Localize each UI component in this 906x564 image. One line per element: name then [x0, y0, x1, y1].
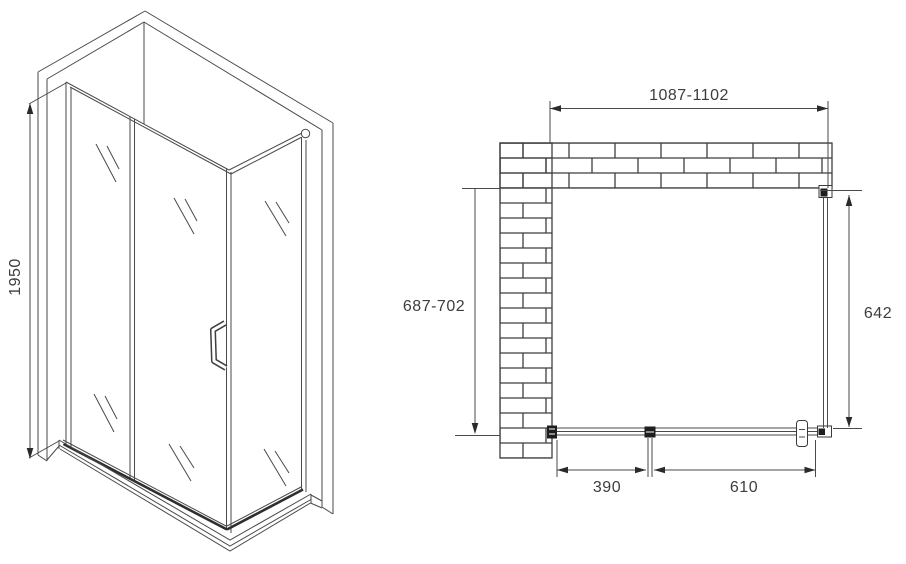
wall-profile-fitting — [547, 426, 557, 439]
corner-bracket-fitting — [818, 426, 832, 437]
arrow-right-icon — [635, 467, 646, 474]
arrow-left-icon — [557, 467, 568, 474]
depth-dimension-label: 687-702 — [403, 298, 465, 315]
shower-tray-3d — [47, 440, 322, 551]
section-left-dimension-label: 390 — [593, 479, 621, 496]
width-dimension-label: 1087-1102 — [649, 87, 729, 104]
height-dimension: 1950 — [7, 83, 66, 459]
depth-dimension: 687-702 — [403, 189, 500, 436]
arrow-up-icon — [27, 103, 34, 114]
left-brick-wall — [500, 143, 552, 458]
section-right-dimension-label: 610 — [730, 479, 758, 496]
arrow-right-icon — [805, 467, 816, 474]
arrow-right-icon — [817, 105, 828, 112]
corner-knob-3d — [301, 129, 309, 137]
walls-3d — [38, 11, 333, 514]
panel-connector-fitting — [645, 427, 656, 438]
side-panel-dimension-label: 642 — [864, 305, 892, 322]
door-rail-plan — [547, 421, 832, 447]
wall-bracket-fitting — [819, 186, 832, 198]
arrow-down-icon — [472, 423, 479, 434]
plan-view: 1087-1102 687-702 642 — [403, 87, 892, 496]
isometric-view: 1950 — [7, 11, 333, 551]
glass-enclosure-3d — [63, 82, 310, 533]
height-dimension-label: 1950 — [7, 258, 24, 296]
technical-drawing-canvas: 1950 — [0, 0, 906, 564]
section-dimensions: 390 610 — [557, 438, 816, 496]
arrow-left-icon — [654, 467, 665, 474]
side-panel-plan — [819, 186, 832, 429]
arrow-down-icon — [27, 448, 34, 459]
door-handle-plan — [797, 421, 808, 447]
arrow-up-icon — [846, 195, 853, 206]
arrow-left-icon — [550, 105, 561, 112]
glass-reflection-marks — [94, 144, 289, 486]
side-panel-dimension: 642 — [820, 191, 892, 429]
door-handle-3d — [213, 323, 226, 368]
drawing-sheet: 1950 — [0, 0, 906, 564]
arrow-down-icon — [846, 417, 853, 427]
